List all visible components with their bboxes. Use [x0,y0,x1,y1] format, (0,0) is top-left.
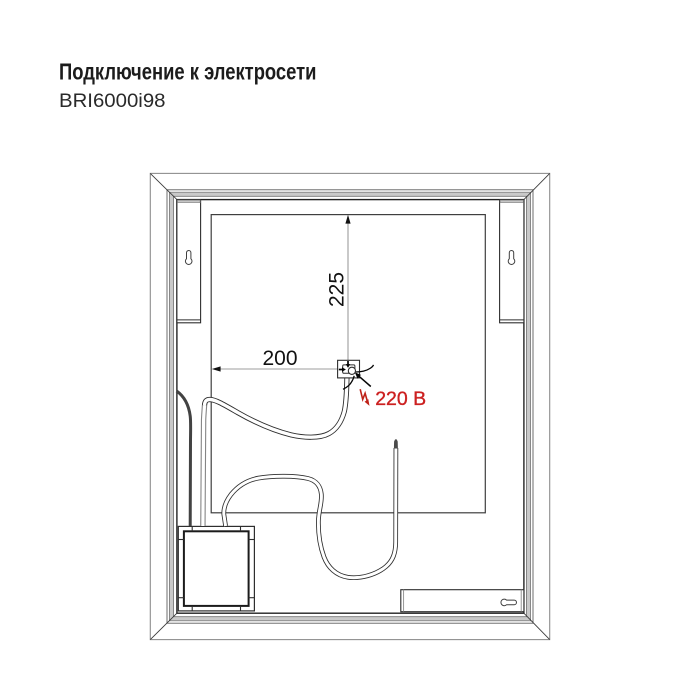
svg-text:BRI6000i98: BRI6000i98 [59,90,166,112]
svg-text:Подключение к электросети: Подключение к электросети [59,59,317,85]
svg-text:200: 200 [262,347,297,370]
svg-text:225: 225 [326,272,349,307]
svg-text:220 В: 220 В [375,388,426,410]
